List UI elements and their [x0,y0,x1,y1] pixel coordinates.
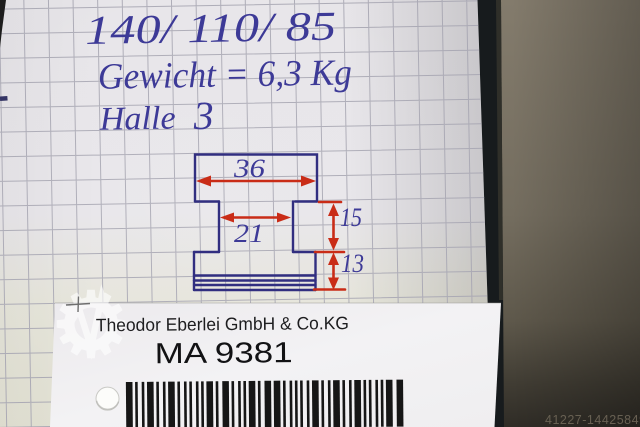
svg-text:Halle: Halle [98,100,176,137]
svg-text:41227-14425849: 41227-14425849 [545,413,640,427]
svg-text:13: 13 [341,249,364,278]
svg-text:Gewicht = 6,3 Kg: Gewicht = 6,3 Kg [98,52,353,97]
svg-text:140/ 110/ 85: 140/ 110/ 85 [85,3,337,53]
svg-text:36: 36 [233,154,265,183]
svg-text:15: 15 [340,203,362,232]
svg-text:3: 3 [192,93,214,138]
svg-text:Theodor Eberlei GmbH & Co.KG: Theodor Eberlei GmbH & Co.KG [96,313,349,335]
svg-text:21: 21 [234,219,264,248]
svg-text:MA 9381: MA 9381 [154,337,292,370]
